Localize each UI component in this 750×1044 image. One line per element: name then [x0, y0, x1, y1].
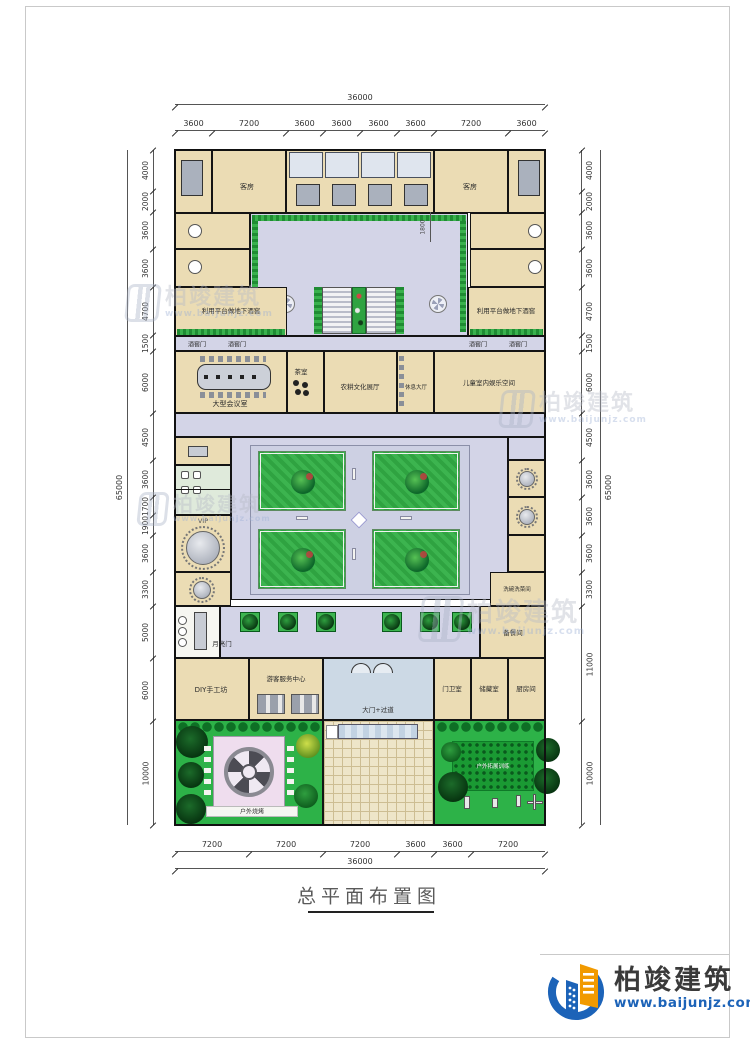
dim-segment: 6000	[138, 351, 153, 413]
dim-segment: 4700	[582, 287, 597, 336]
mid-corridor	[175, 413, 545, 437]
dim-segment: 3600	[323, 114, 360, 130]
shower-circle	[188, 260, 202, 274]
shower-circle	[528, 224, 542, 238]
stair-flight	[322, 287, 352, 334]
dim-segment: 3600	[397, 836, 434, 851]
dim-left-total: 65000	[112, 150, 128, 825]
paving-rosette	[429, 295, 447, 313]
label-cellar-door: 酒窖门	[228, 340, 246, 349]
hedge-strip	[470, 329, 543, 335]
dim-segment: 3600	[582, 250, 597, 287]
wall	[175, 489, 231, 490]
toilet-fixture	[181, 471, 189, 479]
bed	[404, 184, 428, 206]
service-desk	[257, 694, 285, 714]
dim-segment: 3600	[508, 114, 545, 130]
equipment	[516, 795, 521, 807]
label-diy: DIY手工坊	[195, 685, 228, 695]
label-conference: 大型会议室	[213, 399, 248, 409]
label-wash: 洗碗洗菜间	[503, 585, 531, 593]
bed	[332, 184, 356, 206]
tree-planter	[420, 612, 440, 632]
dim-segment: 11000	[582, 607, 597, 721]
label-visitor: 游客服务中心	[267, 673, 306, 683]
entry-mat	[338, 724, 418, 739]
chairs-row	[200, 392, 266, 398]
label-basement-right: 利用平台做地下酒窖	[477, 305, 536, 315]
dim-segment: 10000	[138, 721, 153, 825]
dim-segment: 4700	[138, 287, 153, 336]
stair-planter	[352, 287, 366, 334]
tree	[405, 548, 429, 572]
label-bbq: 户外烧烤	[240, 807, 264, 816]
hedge-row	[436, 721, 543, 733]
door-panel	[194, 612, 207, 650]
pinwheel-paving	[224, 747, 274, 797]
label-cellar-door: 酒窖门	[188, 340, 206, 349]
dim-bottom-segments: 720072007200360036007200	[175, 836, 545, 852]
dim-segment: 4000	[138, 150, 153, 192]
dim-segment: 7200	[434, 114, 508, 130]
bed	[296, 184, 320, 206]
label-kitchen: 厨房间	[516, 683, 536, 693]
dim-segment: 7200	[175, 836, 249, 851]
bench	[352, 468, 356, 480]
dim-segment: 1700	[138, 498, 153, 516]
moon-circle	[178, 616, 187, 625]
dim-segment: 5000	[138, 607, 153, 659]
dim-segment: 10000	[582, 721, 597, 825]
tree-planter	[452, 612, 472, 632]
label-pantry: 备餐间	[503, 627, 523, 637]
dim-segment: 3600	[138, 535, 153, 572]
dim-segment: 3600	[582, 212, 597, 249]
round-table	[186, 531, 220, 565]
round-table	[519, 509, 535, 525]
tree	[294, 784, 318, 808]
moon-circle	[178, 638, 187, 647]
dim-segment: 3600	[582, 498, 597, 535]
label-guest-right: 客房	[463, 182, 477, 192]
dim-segment: 3300	[582, 573, 597, 607]
label-storage: 储藏室	[479, 683, 499, 693]
dim-segment: 7200	[212, 114, 286, 130]
dim-segment: 7200	[249, 836, 323, 851]
tree-planter	[316, 612, 336, 632]
tree	[291, 548, 315, 572]
dim-segment: 6000	[582, 351, 597, 413]
label-tea: 茶室	[295, 366, 308, 376]
dim-segment: 3600	[434, 836, 471, 851]
label-guard: 门卫室	[442, 683, 462, 693]
logo-icon	[546, 956, 608, 1022]
label-cellar-door: 酒窖门	[509, 340, 527, 349]
planting-band	[314, 287, 322, 334]
dim-segment: 4500	[138, 414, 153, 461]
bench	[400, 516, 412, 520]
dim-top-segments: 36007200360036003600360072003600	[175, 114, 545, 131]
bathroom-cell	[325, 152, 359, 178]
shower-circle	[188, 224, 202, 238]
bathroom-cell	[361, 152, 395, 178]
toilet-fixture	[193, 486, 201, 494]
wall	[470, 248, 545, 250]
dim-segment: 4500	[582, 414, 597, 461]
dim-segment: 3600	[360, 114, 397, 130]
label-exhibition: 农耕文化展厅	[341, 381, 380, 391]
drawing-sheet: 36000 36007200360036003600360072003600 7…	[0, 0, 750, 1044]
logo-url: www.baijunjz.com	[614, 995, 750, 1011]
tree-planter	[240, 612, 260, 632]
dim-segment: 7200	[471, 836, 545, 851]
equipment	[492, 798, 498, 808]
service-desk	[291, 694, 319, 714]
dim-segment: 3600	[175, 114, 212, 130]
wing-left	[175, 213, 250, 287]
dim-segment: 4000	[582, 150, 597, 192]
inner-dim-line	[430, 212, 431, 242]
titleblock-line	[540, 954, 730, 955]
tree	[176, 794, 206, 824]
table-glyph	[188, 446, 208, 457]
bench	[352, 548, 356, 560]
toilet-fixture	[193, 471, 201, 479]
dim-right-total: 65000	[600, 150, 616, 825]
equipment-cross	[533, 794, 536, 810]
dim-segment: 3600	[582, 535, 597, 572]
company-logo: 柏竣建筑 www.baijunjz.com	[546, 956, 750, 1022]
toilet-fixture	[181, 486, 189, 494]
tea-table-dots	[293, 380, 309, 396]
tree	[178, 762, 204, 788]
drawing-title: 总平面布置图	[297, 882, 441, 909]
conference-table	[197, 364, 271, 390]
dim-left-segments: 4000200036003600470015006000450036001700…	[138, 150, 154, 825]
dim-segment: 3600	[138, 250, 153, 287]
bed	[368, 184, 392, 206]
room-dining-3	[508, 535, 545, 572]
bench	[296, 516, 308, 520]
label-kids: 儿童室内娱乐空间	[463, 377, 515, 387]
moon-circle	[178, 627, 187, 636]
dim-segment: 1500	[138, 336, 153, 352]
tree	[536, 738, 560, 762]
dim-segment: 3300	[138, 573, 153, 607]
tree	[291, 470, 315, 494]
bathroom-cell	[397, 152, 431, 178]
dim-segment: 3600	[286, 114, 323, 130]
inner-dim-label: 1800	[420, 219, 427, 234]
hedge-strip	[460, 221, 466, 332]
wall	[175, 248, 250, 250]
title-underline	[308, 911, 434, 913]
label-gate: 大门+过道	[362, 704, 393, 714]
round-table	[519, 471, 535, 487]
label-cellar-door: 酒窖门	[469, 340, 487, 349]
hedge-strip	[252, 215, 466, 221]
tree	[438, 772, 468, 802]
dim-segment: 7200	[323, 836, 397, 851]
dim-top-total: 36000	[175, 90, 545, 105]
planting-band	[396, 287, 404, 334]
label-training: 户外拓展训练	[476, 762, 509, 770]
seat-row	[204, 746, 211, 800]
shower-circle	[528, 260, 542, 274]
dim-segment: 2000	[138, 192, 153, 213]
dim-segment: 3600	[138, 461, 153, 498]
label-moon-gate: 月亮门	[212, 638, 232, 648]
tree	[405, 470, 429, 494]
chairs-column	[399, 356, 404, 408]
dim-segment: 6000	[138, 659, 153, 721]
dim-segment: 1900	[138, 516, 153, 536]
bathroom-cell	[289, 152, 323, 178]
tree-planter	[278, 612, 298, 632]
round-table	[193, 581, 211, 599]
tree	[296, 734, 320, 758]
chairs-row	[200, 356, 266, 362]
dim-segment: 3600	[138, 212, 153, 249]
bed	[181, 160, 203, 196]
tree-planter	[382, 612, 402, 632]
hedge-strip	[177, 329, 285, 335]
label-vip: VIP	[198, 517, 208, 525]
tree	[534, 768, 560, 794]
dim-segment: 3600	[397, 114, 434, 130]
label-guest-left: 客房	[240, 182, 254, 192]
dim-bottom-total: 36000	[175, 854, 545, 869]
stair-flight	[366, 287, 396, 334]
label-basement-left: 利用平台做地下酒窖	[202, 305, 261, 315]
seat-row	[287, 746, 294, 800]
label-lounge: 休息大厅	[405, 383, 427, 391]
sign-board	[326, 725, 338, 739]
tree	[441, 742, 461, 762]
dim-segment: 3600	[582, 461, 597, 498]
logo-name: 柏竣建筑	[614, 967, 750, 995]
dim-right-segments: 4000200036003600470015006000450036003600…	[581, 150, 597, 825]
equipment	[464, 796, 470, 809]
bed	[518, 160, 540, 196]
corridor-cell	[508, 437, 545, 460]
